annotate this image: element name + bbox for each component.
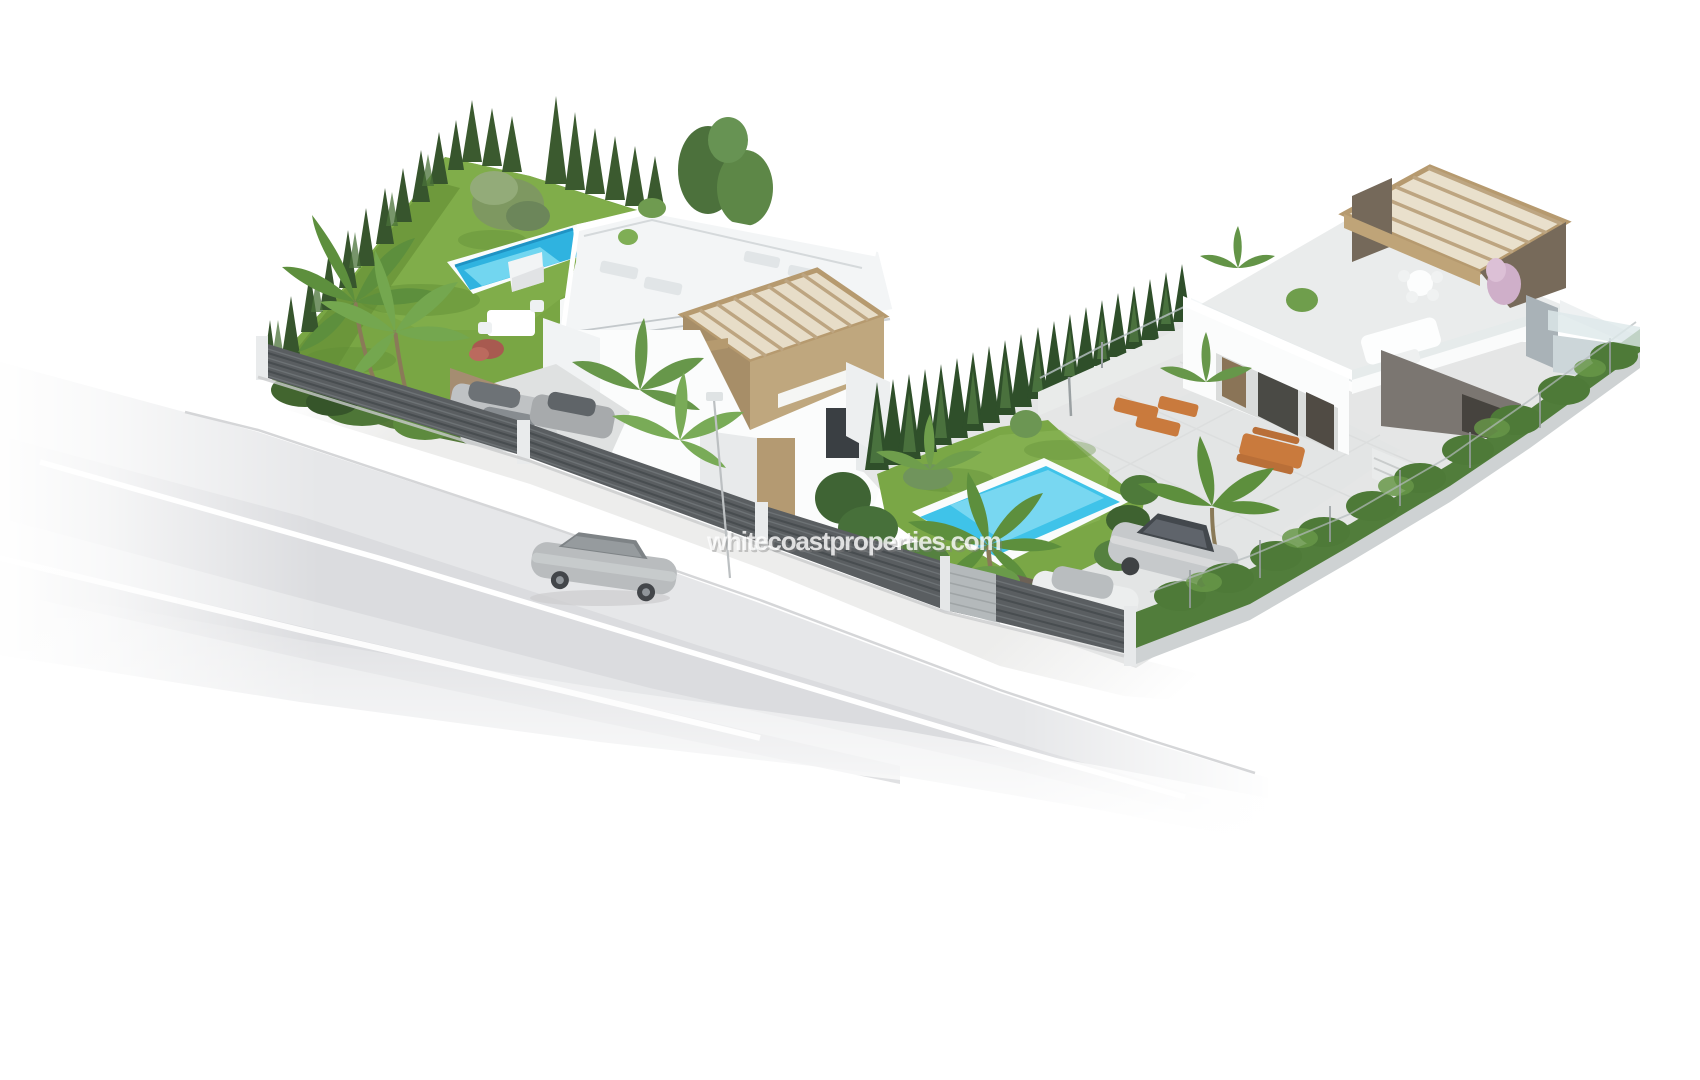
svg-text:whitecoastproperties.com: whitecoastproperties.com [706, 526, 1000, 556]
